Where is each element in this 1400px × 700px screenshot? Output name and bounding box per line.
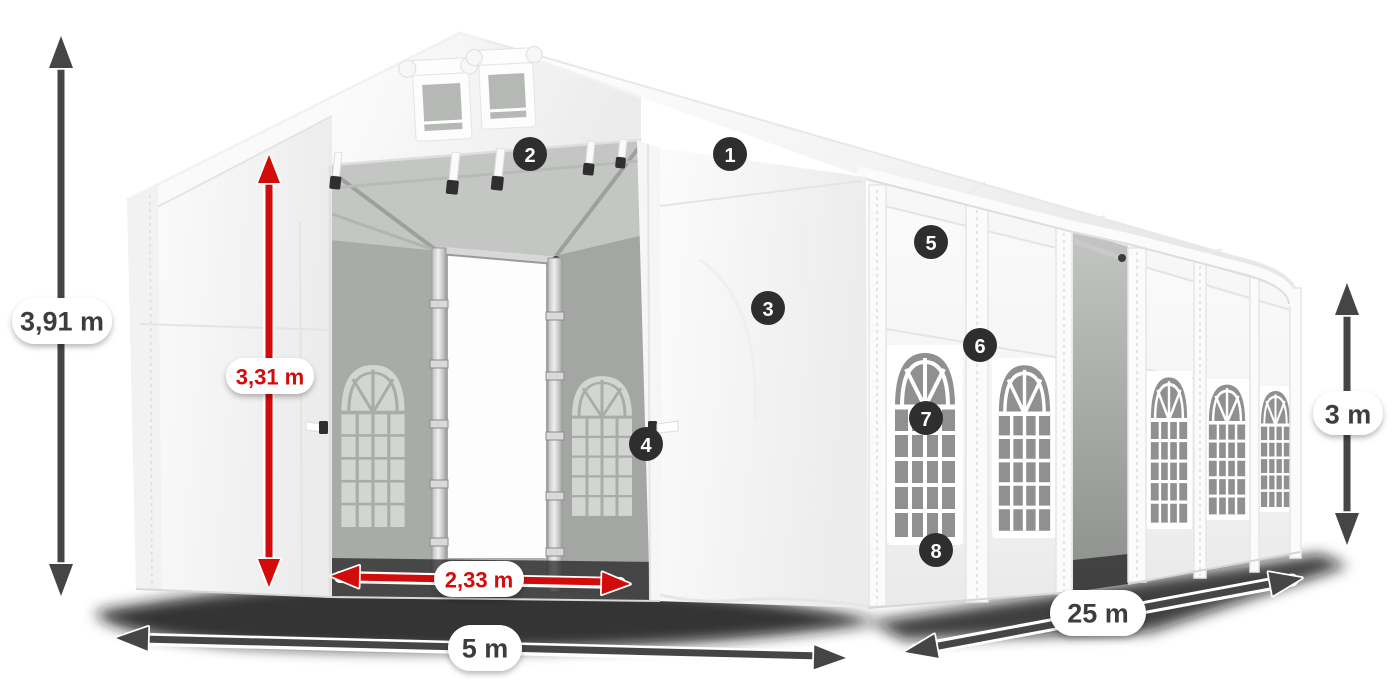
entrance-width-label: 2,33 m — [445, 568, 514, 593]
badge-6-number: 6 — [974, 336, 985, 358]
badge-4-number: 4 — [640, 435, 652, 457]
feature-badge-1[interactable]: 1 — [713, 137, 747, 171]
feature-badge-4[interactable]: 4 — [629, 427, 663, 461]
side-door-opening — [1073, 233, 1128, 592]
feature-badge-5[interactable]: 5 — [914, 225, 948, 259]
badge-5-number: 5 — [925, 233, 936, 255]
feature-badge-8[interactable]: 8 — [919, 533, 953, 567]
side-window-3 — [1146, 371, 1192, 529]
tent-diagram: 3,91 m 3,31 m 2,33 m 5 m 25 m — [0, 0, 1400, 700]
side-window-1 — [887, 345, 963, 545]
product-illustration-canvas: 3,91 m 3,31 m 2,33 m 5 m 25 m — [0, 0, 1400, 700]
dimension-ridge-height: 3,91 m — [12, 36, 112, 596]
length-label: 25 m — [1067, 598, 1129, 628]
front-right-door-panel — [637, 140, 868, 608]
side-door-roller-end — [1118, 254, 1126, 262]
inner-height-label: 3,31 m — [236, 365, 305, 390]
badge-7-number: 7 — [920, 409, 931, 431]
badge-2-number: 2 — [524, 145, 535, 167]
badge-3-number: 3 — [762, 299, 773, 321]
interior-window-right — [572, 376, 632, 516]
badge-1-number: 1 — [724, 145, 735, 167]
front-width-label: 5 m — [462, 633, 509, 663]
side-window-5 — [1257, 386, 1294, 512]
far-door-opening — [448, 255, 546, 558]
side-window-4 — [1204, 379, 1250, 520]
tent-interior — [329, 141, 659, 603]
interior-window-left — [341, 365, 404, 527]
feature-badge-7[interactable]: 7 — [909, 401, 943, 435]
side-height-label: 3 m — [1325, 399, 1372, 429]
feature-badge-3[interactable]: 3 — [751, 291, 785, 325]
ridge-height-label: 3,91 m — [20, 306, 104, 336]
badge-8-number: 8 — [930, 541, 941, 563]
feature-badge-6[interactable]: 6 — [963, 328, 997, 362]
dimension-side-height: 3 m — [1313, 283, 1383, 545]
front-left-corner-post — [127, 184, 162, 590]
side-window-2 — [992, 358, 1057, 538]
feature-badge-2[interactable]: 2 — [513, 137, 547, 171]
